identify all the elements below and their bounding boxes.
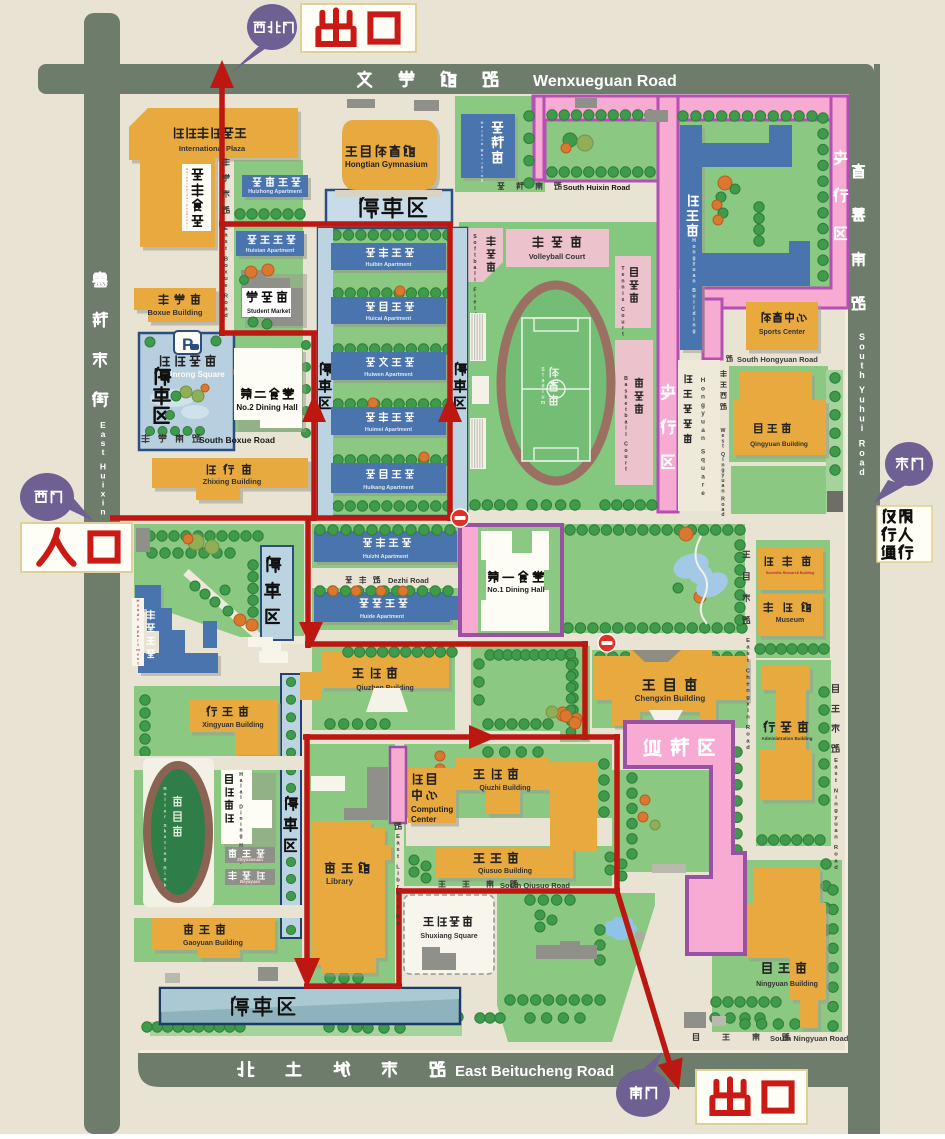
svg-text:Jinrong Square: Jinrong Square <box>166 370 225 379</box>
svg-text:b: b <box>396 878 400 884</box>
svg-text:o: o <box>624 448 627 454</box>
svg-text:o: o <box>621 313 624 319</box>
svg-text:Huizhi Apartment: Huizhi Apartment <box>363 554 408 560</box>
svg-text:o: o <box>834 852 838 858</box>
svg-text:a: a <box>701 427 705 434</box>
svg-text:d: d <box>859 467 865 477</box>
svg-text:No.1 Dining Hall: No.1 Dining Hall <box>487 585 545 594</box>
svg-text:South Ningyuan Road: South Ningyuan Road <box>770 1034 849 1043</box>
svg-text:t: t <box>625 407 627 413</box>
svg-text:Boxue Building: Boxue Building <box>148 308 203 317</box>
svg-text:S: S <box>163 823 166 828</box>
svg-text:a: a <box>625 419 628 425</box>
svg-text:k: k <box>164 882 167 887</box>
svg-text:o: o <box>224 263 228 269</box>
svg-text:i: i <box>164 871 165 876</box>
svg-text:s: s <box>625 388 628 394</box>
svg-text:g: g <box>239 833 242 839</box>
svg-text:b: b <box>473 259 476 265</box>
svg-text:S: S <box>859 332 865 342</box>
svg-text:u: u <box>701 465 705 472</box>
svg-text:s: s <box>396 847 399 853</box>
svg-text:o: o <box>396 921 400 927</box>
svg-text:Computing: Computing <box>411 805 453 814</box>
svg-text:k: k <box>625 395 628 401</box>
svg-text:d: d <box>746 745 750 751</box>
svg-text:B: B <box>624 376 628 382</box>
svg-text:n: n <box>834 835 838 841</box>
svg-text:d: d <box>834 865 838 871</box>
svg-text:Dezhi Road: Dezhi Road <box>388 576 429 585</box>
svg-text:a: a <box>701 473 705 480</box>
svg-text:E: E <box>746 638 750 644</box>
svg-text:South Qiusuo Road: South Qiusuo Road <box>500 881 570 890</box>
svg-text:n: n <box>721 488 724 494</box>
svg-text:Chengxin Building: Chengxin Building <box>635 694 706 703</box>
svg-text:n: n <box>164 877 167 882</box>
svg-text:S: S <box>701 448 706 455</box>
svg-text:International Plaza: International Plaza <box>179 144 246 153</box>
svg-text:i: i <box>164 845 165 850</box>
svg-text:e: e <box>625 401 628 407</box>
svg-text:a: a <box>625 382 628 388</box>
svg-text:Huikang Apartment: Huikang Apartment <box>363 485 414 491</box>
svg-text:e: e <box>164 808 167 813</box>
svg-text:n: n <box>701 435 705 442</box>
svg-text:r: r <box>622 326 624 332</box>
svg-text:Museum: Museum <box>776 617 804 624</box>
svg-text:g: g <box>746 695 750 701</box>
svg-text:n: n <box>701 394 705 401</box>
svg-text:u: u <box>834 821 838 827</box>
svg-text:n: n <box>164 851 167 856</box>
svg-text:B: B <box>224 256 228 262</box>
svg-text:u: u <box>224 276 228 282</box>
svg-text:Wenxueguan Road: Wenxueguan Road <box>533 73 677 90</box>
svg-text:e: e <box>474 300 477 306</box>
svg-text:n: n <box>621 285 624 291</box>
svg-text:t: t <box>835 778 837 784</box>
svg-text:No.2 Dining Hall: No.2 Dining Hall <box>236 403 297 412</box>
svg-text:s: s <box>224 239 227 245</box>
svg-text:u: u <box>859 414 865 424</box>
svg-text:S: S <box>473 234 477 240</box>
svg-text:o: o <box>473 240 476 246</box>
svg-text:N: N <box>834 788 838 794</box>
svg-text:Student Market: Student Market <box>247 309 290 315</box>
svg-text:t: t <box>225 246 227 252</box>
svg-text:r: r <box>625 460 627 466</box>
svg-text:t: t <box>625 467 627 473</box>
svg-text:u: u <box>859 351 865 361</box>
svg-text:h: h <box>746 675 750 681</box>
svg-text:t: t <box>102 447 105 457</box>
svg-text:m: m <box>541 400 546 406</box>
svg-text:n: n <box>621 278 624 284</box>
svg-text:g: g <box>834 808 838 814</box>
svg-text:q: q <box>701 457 705 464</box>
svg-text:n: n <box>746 715 750 721</box>
svg-text:r: r <box>164 814 166 819</box>
svg-text:Shuxiang Square: Shuxiang Square <box>420 933 477 940</box>
svg-text:s: s <box>834 771 837 777</box>
svg-text:d: d <box>721 512 724 518</box>
svg-text:l: l <box>164 803 165 808</box>
svg-text:t: t <box>397 854 399 860</box>
svg-text:t: t <box>474 253 476 259</box>
svg-text:i: i <box>861 423 864 433</box>
svg-text:F: F <box>473 287 476 293</box>
svg-text:Library: Library <box>326 877 354 886</box>
svg-text:Qiusuo Building: Qiusuo Building <box>478 868 532 875</box>
svg-text:Xingyuan Building: Xingyuan Building <box>202 722 263 729</box>
svg-text:t: t <box>747 658 749 664</box>
svg-text:f: f <box>474 246 476 252</box>
svg-text:Qingyuan Building: Qingyuan Building <box>750 441 808 448</box>
svg-text:n: n <box>100 506 105 516</box>
svg-text:t: t <box>622 332 624 338</box>
svg-text:h: h <box>859 404 865 414</box>
svg-text:o: o <box>701 385 705 392</box>
svg-text:South Huixin Road: South Huixin Road <box>563 183 630 192</box>
svg-text:u: u <box>621 319 624 325</box>
svg-text:South Boxue Road: South Boxue Road <box>199 435 275 445</box>
svg-text:k: k <box>164 829 167 834</box>
svg-text:Volleyball Court: Volleyball Court <box>529 252 586 261</box>
svg-text:u: u <box>624 454 627 460</box>
svg-text:b: b <box>624 413 627 419</box>
svg-text:Huixian Apartment: Huixian Apartment <box>246 248 295 254</box>
svg-text:n: n <box>692 279 695 285</box>
svg-text:E: E <box>396 834 400 840</box>
svg-text:o: o <box>224 300 228 306</box>
svg-text:Ningyuan Building: Ningyuan Building <box>756 981 818 988</box>
svg-text:e: e <box>622 272 625 278</box>
svg-text:u: u <box>859 395 865 405</box>
svg-text:u: u <box>701 419 705 426</box>
svg-text:o: o <box>746 732 750 738</box>
svg-text:o: o <box>859 448 865 458</box>
svg-text:C: C <box>624 442 628 448</box>
svg-text:o: o <box>164 792 167 797</box>
svg-text:n: n <box>746 688 750 694</box>
svg-text:y: y <box>701 410 705 417</box>
svg-text:e: e <box>701 490 705 497</box>
svg-text:t: t <box>722 444 724 450</box>
svg-text:d: d <box>224 313 228 319</box>
svg-text:E: E <box>834 758 838 764</box>
svg-text:Huizhong Apartment: Huizhong Apartment <box>248 189 302 195</box>
svg-text:E: E <box>224 226 228 232</box>
svg-text:a: a <box>474 265 477 271</box>
svg-text:Huiwen Apartment: Huiwen Apartment <box>364 372 413 378</box>
svg-text:Gaoyuan Building: Gaoyuan Building <box>183 940 243 947</box>
svg-text:South Hongyuan Road: South Hongyuan Road <box>737 355 818 364</box>
svg-text:Boyayuan: Boyayuan <box>240 879 260 884</box>
svg-text:s: s <box>622 297 625 303</box>
svg-text:a: a <box>164 834 167 839</box>
svg-text:Huicai Apartment: Huicai Apartment <box>366 316 412 322</box>
svg-text:Center: Center <box>411 815 436 824</box>
svg-text:L: L <box>396 864 400 870</box>
svg-text:Zhiyuanxuan: Zhiyuanxuan <box>237 857 263 862</box>
svg-text:l: l <box>164 797 165 802</box>
svg-text:Qiuzhi Building: Qiuzhi Building <box>479 785 530 792</box>
svg-text:s: s <box>746 651 749 657</box>
svg-text:h: h <box>859 370 865 380</box>
svg-text:t: t <box>861 361 864 371</box>
svg-text:Huide Apartment: Huide Apartment <box>360 614 404 620</box>
svg-text:Huimei Apartment: Huimei Apartment <box>365 427 412 433</box>
svg-text:Hongtian Gymnasium: Hongtian Gymnasium <box>345 160 428 169</box>
svg-text:Y: Y <box>859 385 865 395</box>
svg-text:R: R <box>859 438 866 448</box>
svg-text:g: g <box>701 402 705 409</box>
svg-text:Scientific Research Building: Scientific Research Building <box>766 571 815 575</box>
svg-text:g: g <box>164 857 167 862</box>
svg-text:Administration Building: Administration Building <box>762 736 813 741</box>
svg-text:Sports Center: Sports Center <box>759 329 806 336</box>
svg-text:o: o <box>859 342 865 352</box>
svg-text:Zhixing Building: Zhixing Building <box>203 477 262 486</box>
svg-text:g: g <box>692 328 695 334</box>
svg-text:C: C <box>621 307 625 313</box>
svg-text:n: n <box>834 802 838 808</box>
svg-text:Huibin Apartment: Huibin Apartment <box>366 262 412 268</box>
svg-text:H: H <box>701 377 706 384</box>
svg-text:East Beitucheng Road: East Beitucheng Road <box>455 1063 614 1080</box>
